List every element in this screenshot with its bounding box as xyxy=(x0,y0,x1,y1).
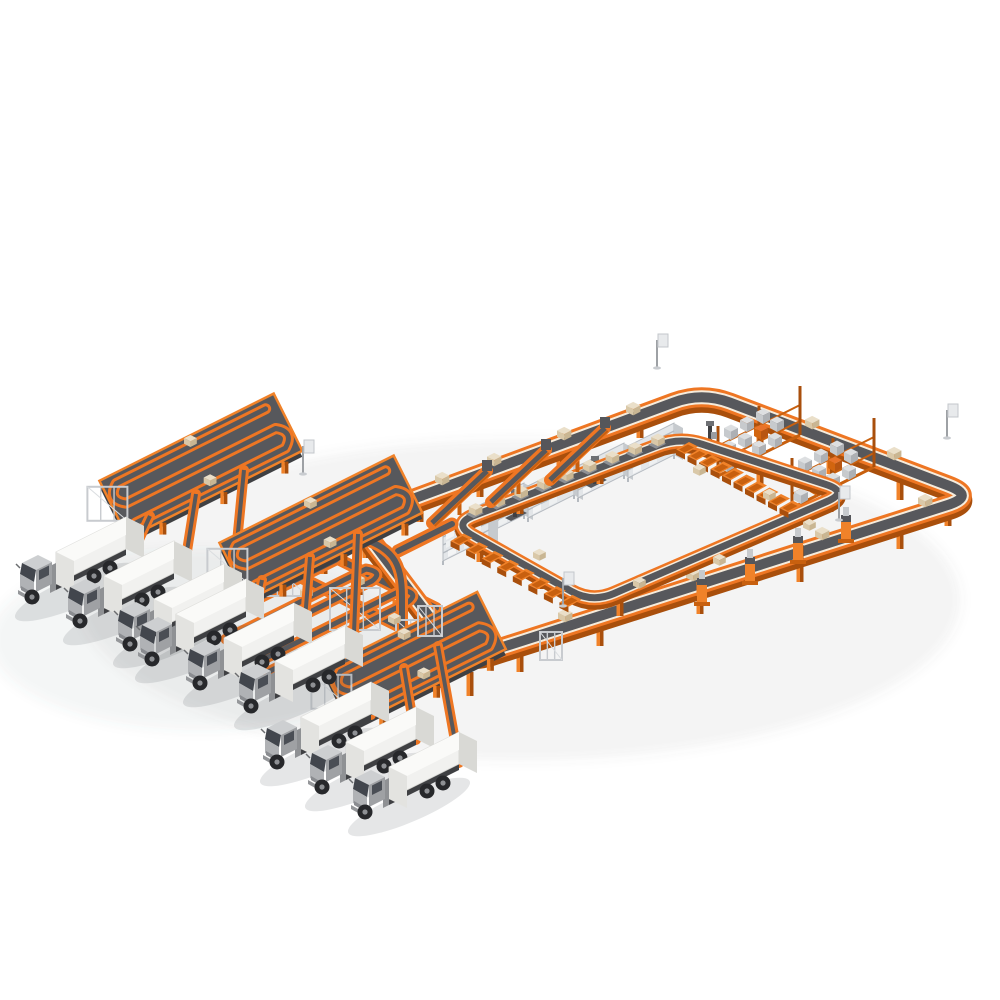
warehouse-illustration xyxy=(0,0,1000,1000)
sign-post xyxy=(943,404,958,440)
sign-post xyxy=(653,334,668,370)
isometric-scene xyxy=(0,0,1000,1000)
